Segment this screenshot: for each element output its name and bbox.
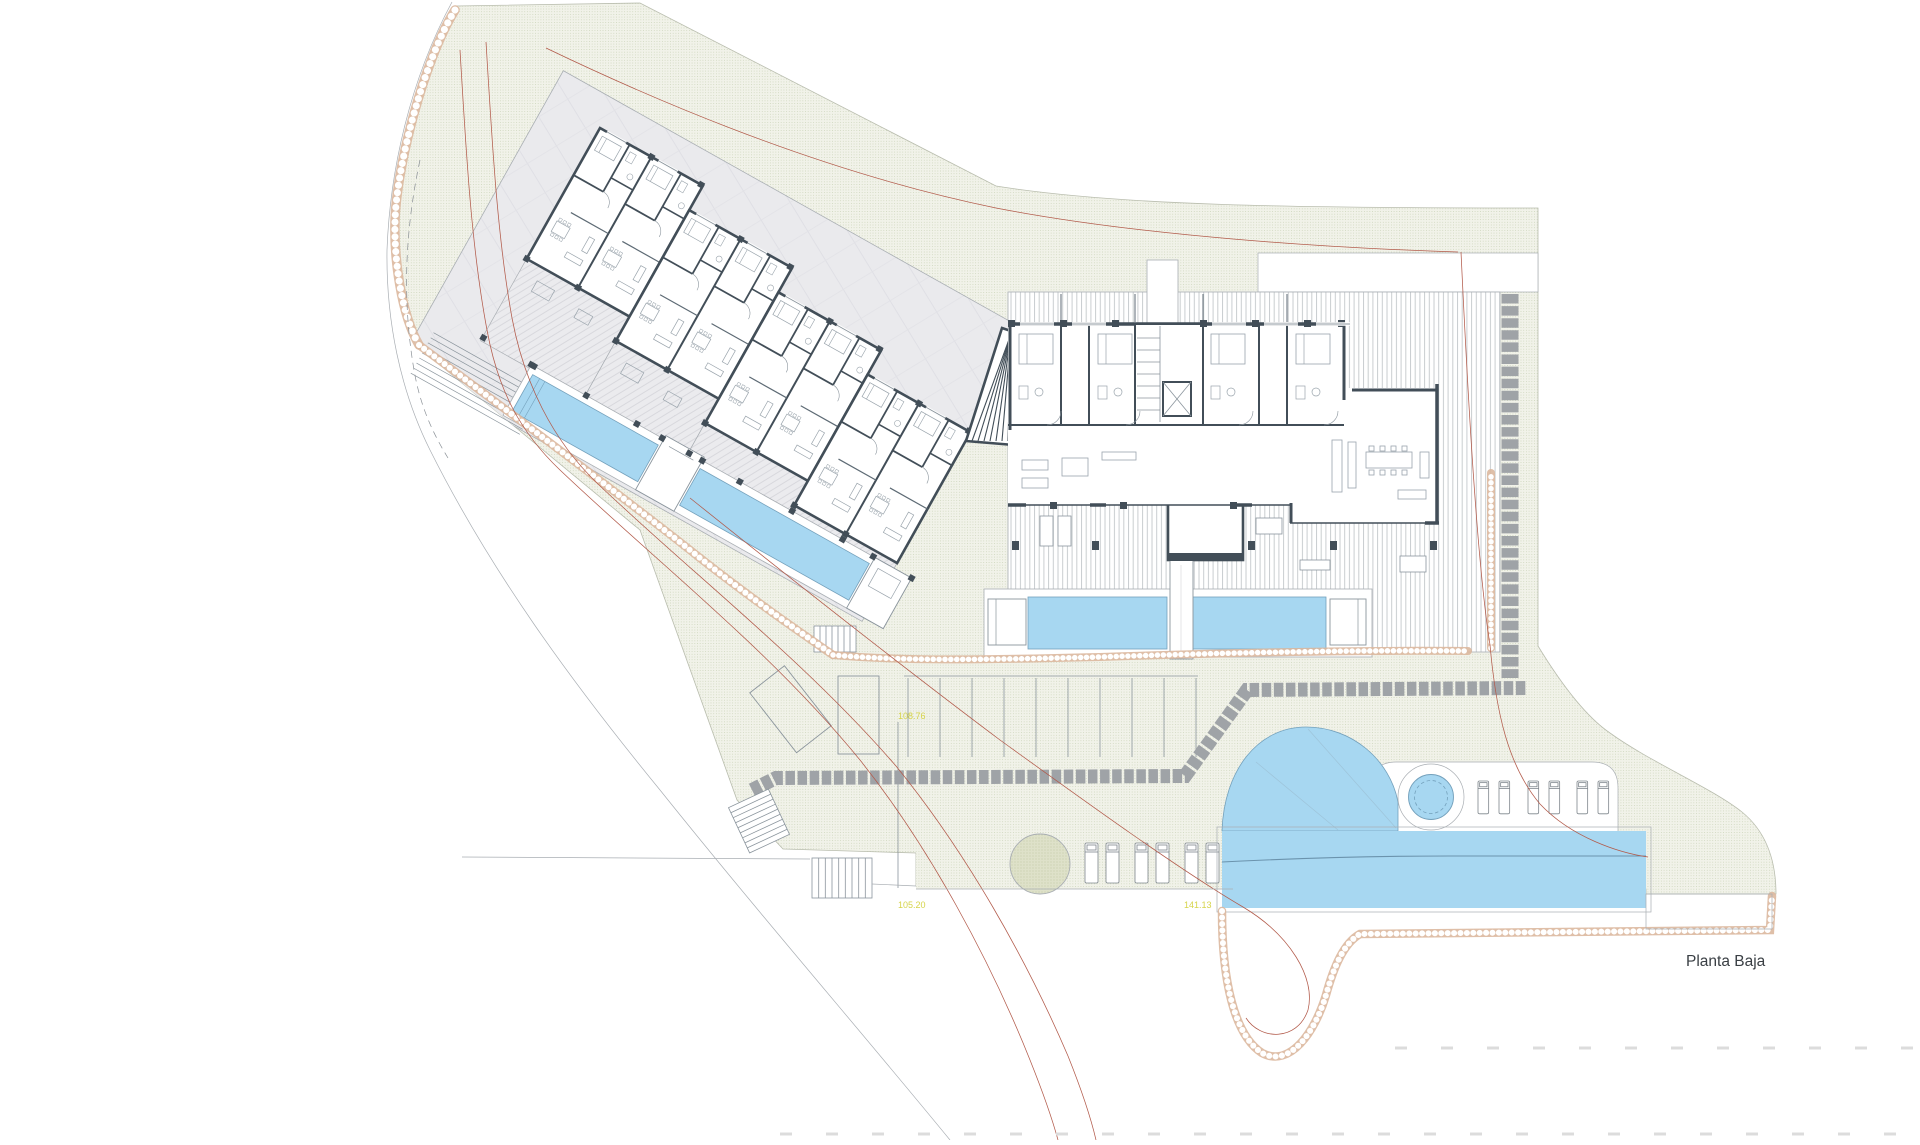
svg-text:141.13: 141.13 (1184, 900, 1212, 910)
svg-text:105.20: 105.20 (898, 900, 926, 910)
svg-text:Planta Baja: Planta Baja (1686, 953, 1766, 970)
svg-text:108.76: 108.76 (898, 711, 926, 721)
